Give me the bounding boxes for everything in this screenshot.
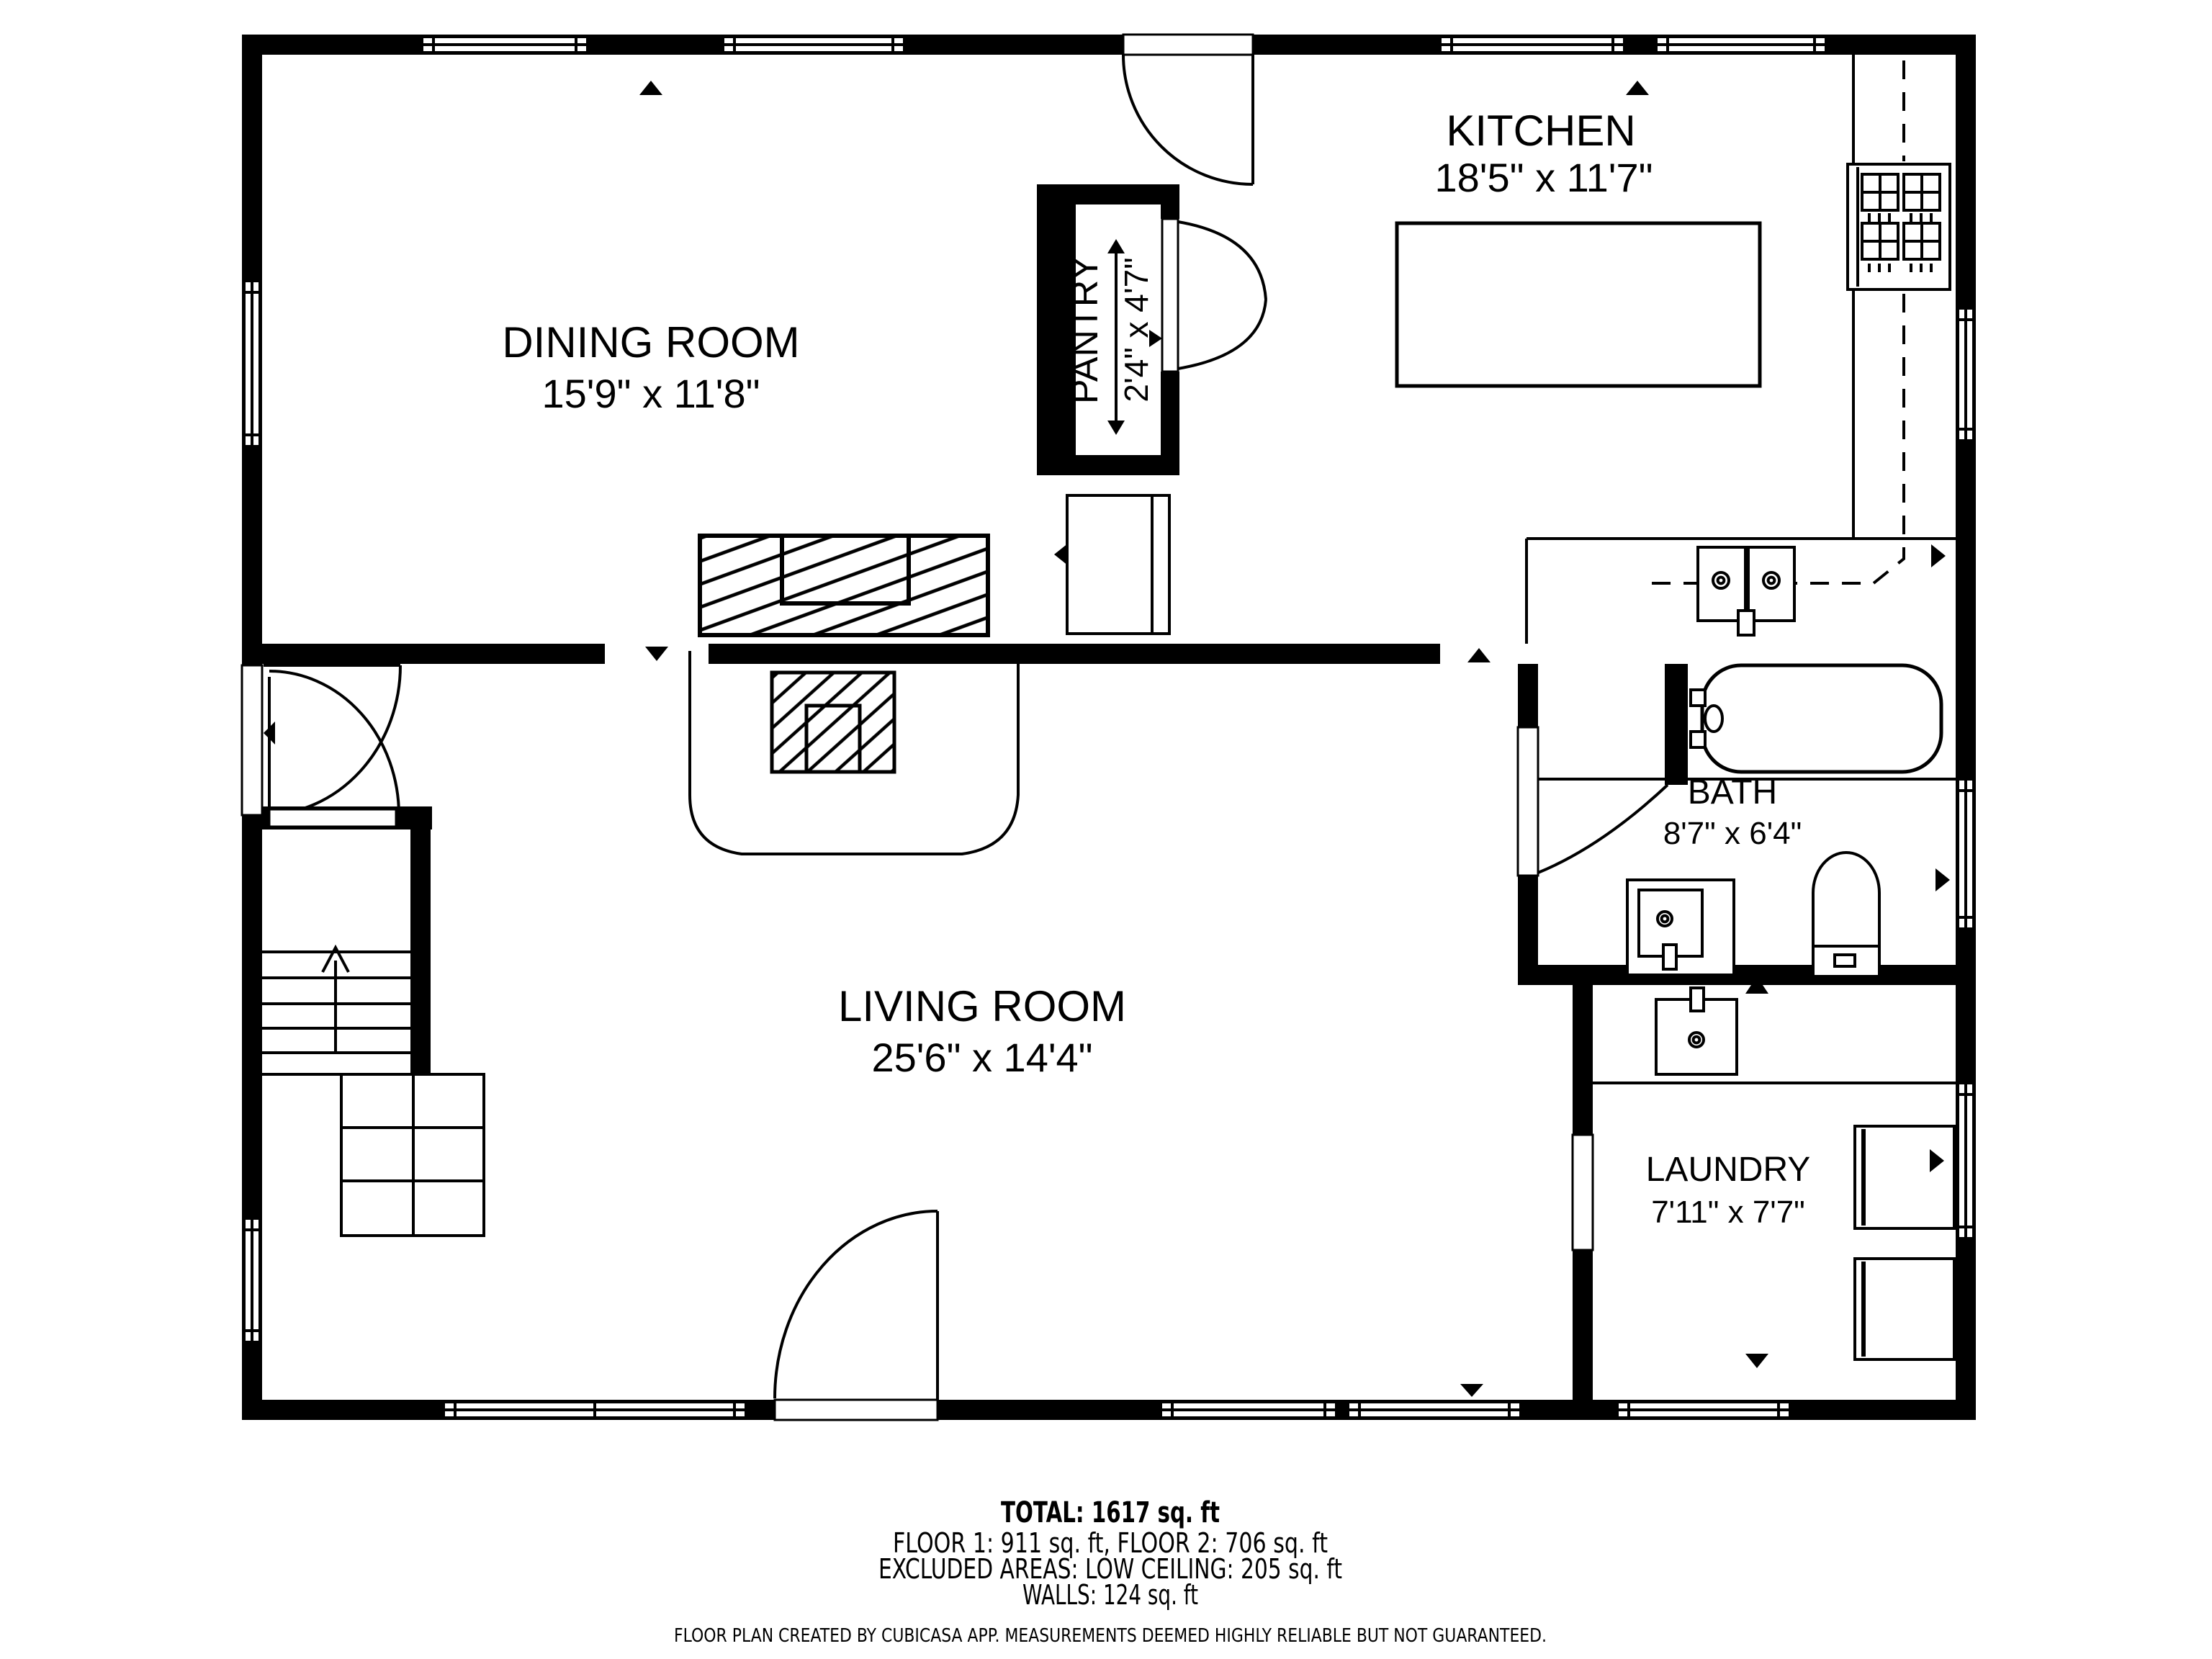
pantry-dims: 2'4" x 4'7": [1118, 257, 1155, 402]
wall-pantry-right-upper: [1161, 204, 1179, 219]
window: [1440, 37, 1624, 53]
opening-stairs: [269, 809, 396, 827]
dryer-icon: [1855, 1259, 1954, 1359]
wall-divider-right: [709, 644, 1440, 664]
disclaimer: FLOOR PLAN CREATED BY CUBICASA APP. MEAS…: [674, 1625, 1547, 1647]
stairs-landing: [341, 1074, 484, 1236]
laundry-label: LAUNDRY: [1646, 1151, 1811, 1189]
bathtub-icon: [1691, 665, 1941, 772]
window: [444, 1402, 746, 1418]
toilet-icon: [1813, 853, 1879, 976]
pantry-label: PANTRY: [1064, 256, 1106, 404]
window: [244, 281, 260, 446]
kitchen-sink-icon: [1698, 547, 1794, 635]
window: [1958, 1083, 1974, 1238]
laundry-sink-icon: [1656, 988, 1737, 1074]
kitchen-label: KITCHEN: [1446, 107, 1635, 155]
summary-total: TOTAL: 1617 sq. ft: [1001, 1496, 1220, 1529]
wall-laundry-left-upper: [1573, 985, 1593, 1135]
fireplace-chimney: [700, 536, 988, 635]
summary-walls: WALLS: 124 sq. ft: [1022, 1579, 1198, 1611]
pantry-cabinet: [1067, 495, 1169, 634]
wall-laundry-left-lower: [1573, 1250, 1593, 1400]
wall-bath-laundry-divider: [1518, 965, 1976, 985]
window: [1617, 1402, 1790, 1418]
wall-divider-left: [262, 644, 605, 664]
living-room-label: LIVING ROOM: [838, 982, 1126, 1030]
window: [1348, 1402, 1521, 1418]
bath-label: BATH: [1688, 773, 1777, 811]
laundry-dims: 7'11" x 7'7": [1651, 1195, 1805, 1230]
window: [244, 1218, 260, 1342]
window: [1656, 37, 1826, 53]
wall-bath-left-upper: [1518, 664, 1538, 727]
dining-room-dims: 15'9" x 11'8": [542, 371, 760, 416]
washer-icon: [1855, 1126, 1954, 1228]
window: [723, 37, 904, 53]
vanity-sink-icon: [1627, 880, 1734, 975]
window: [1958, 308, 1974, 441]
floor-plan-page: DINING ROOM 15'9" x 11'8" KITCHEN 18'5" …: [0, 0, 2212, 1659]
wall-pantry-top: [1076, 184, 1179, 204]
living-room-dims: 25'6" x 14'4": [871, 1035, 1092, 1080]
opening-laundry: [1573, 1135, 1593, 1250]
dining-room-label: DINING ROOM: [502, 318, 799, 367]
window: [422, 37, 588, 53]
stove-icon: [1848, 164, 1950, 289]
wall-pantry-right-lower: [1161, 372, 1179, 455]
fireplace-stove-body: [772, 673, 894, 772]
window: [1161, 1402, 1336, 1418]
wall-pantry-bottom: [1037, 455, 1179, 475]
floor-plan-canvas: DINING ROOM 15'9" x 11'8" KITCHEN 18'5" …: [0, 0, 2212, 1659]
wall-stair-right: [410, 829, 431, 1074]
window: [1958, 779, 1974, 929]
bath-dims: 8'7" x 6'4": [1663, 816, 1802, 851]
kitchen-dims: 18'5" x 11'7": [1435, 155, 1653, 200]
